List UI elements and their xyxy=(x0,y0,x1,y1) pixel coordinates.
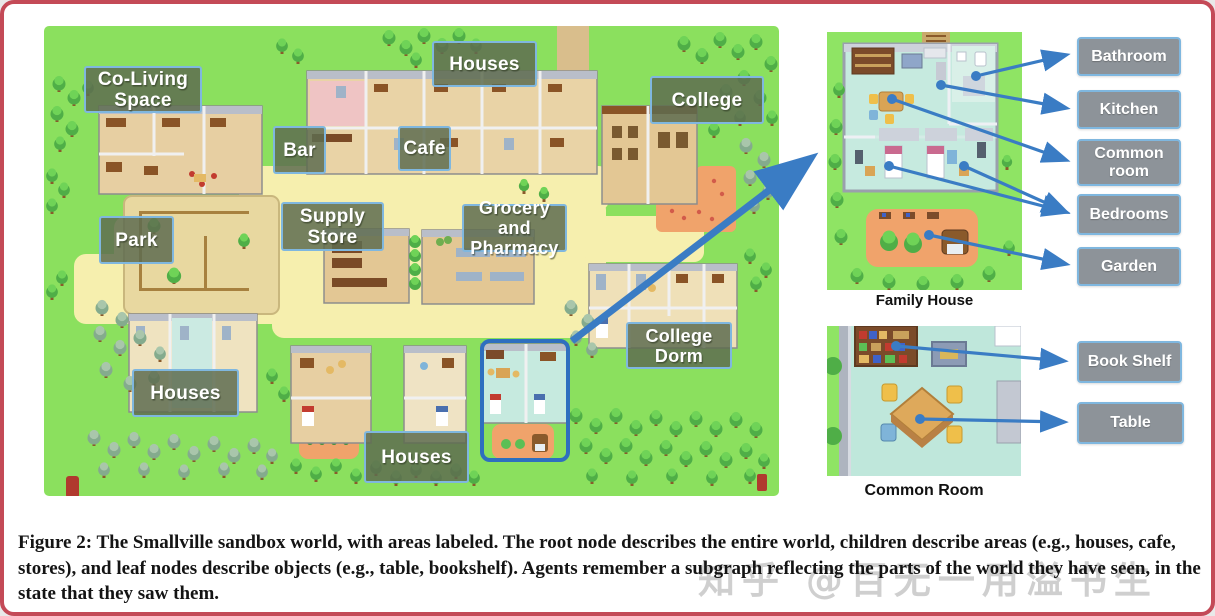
map-label-college: College xyxy=(650,76,764,124)
family-house-caption: Family House xyxy=(827,292,1022,309)
annotation-label-bedrooms: Bedrooms xyxy=(1077,194,1181,235)
annotation-label-kitchen: Kitchen xyxy=(1077,90,1181,129)
common-room-caption: Common Room xyxy=(827,482,1021,500)
map-label-college-dorm: College Dorm xyxy=(626,322,732,369)
family-house-highlight-box xyxy=(480,339,570,462)
annotation-label-table: Table xyxy=(1077,402,1184,444)
annotation-label-garden: Garden xyxy=(1077,247,1181,286)
building-co-living xyxy=(99,106,262,194)
red-mailbox xyxy=(757,474,767,491)
building-house-2 xyxy=(404,346,466,443)
building-house-1 xyxy=(291,346,371,443)
map-label-bar: Bar xyxy=(273,126,326,174)
map-label-grocery-pharmacy: Grocery and Pharmacy xyxy=(462,204,567,252)
map-label-park: Park xyxy=(99,216,174,264)
red-truck xyxy=(66,476,79,496)
annotation-label-book-shelf: Book Shelf xyxy=(1077,341,1182,383)
annotation-label-bathroom: Bathroom xyxy=(1077,37,1181,76)
figure-caption: Figure 2: The Smallville sandbox world, … xyxy=(18,530,1206,607)
common-room-panel xyxy=(827,326,1021,476)
map-label-supply-store: Supply Store xyxy=(281,202,384,251)
family-house-panel xyxy=(827,32,1022,290)
annotation-label-common-room: Common room xyxy=(1077,139,1181,186)
map-label-cafe: Cafe xyxy=(398,126,451,171)
figure-2-smallville: Co-Living Space Houses Bar Cafe College … xyxy=(0,0,1215,616)
map-label-houses-bottom-left: Houses xyxy=(132,369,239,417)
map-label-co-living-space: Co-Living Space xyxy=(84,66,202,113)
map-label-houses-top: Houses xyxy=(432,41,537,87)
map-label-houses-bottom-middle: Houses xyxy=(364,431,469,483)
